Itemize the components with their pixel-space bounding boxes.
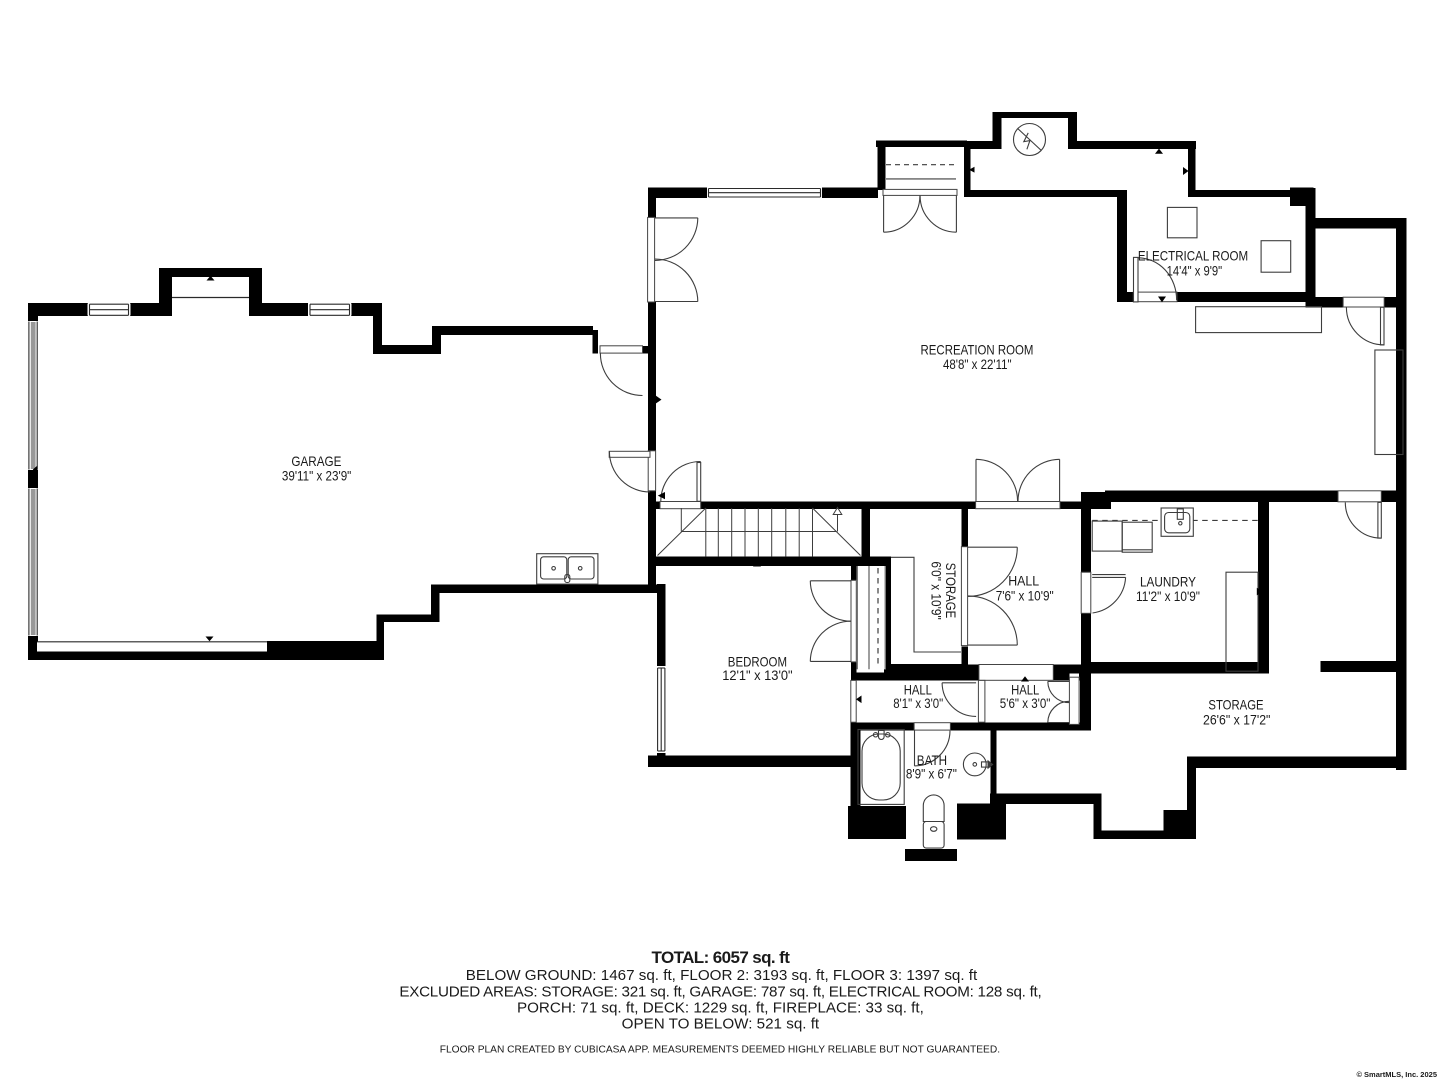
svg-text:8'9" x 6'7": 8'9" x 6'7" bbox=[906, 765, 957, 781]
svg-text:6'0" x 10'9": 6'0" x 10'9" bbox=[929, 561, 945, 619]
svg-text:BELOW GROUND: 1467 sq. ft, FLO: BELOW GROUND: 1467 sq. ft, FLOOR 2: 3193… bbox=[466, 967, 978, 984]
svg-text:TOTAL: 6057 sq. ft: TOTAL: 6057 sq. ft bbox=[651, 948, 790, 967]
svg-text:11'2" x 10'9": 11'2" x 10'9" bbox=[1136, 588, 1200, 604]
svg-text:HALL: HALL bbox=[1008, 573, 1039, 589]
svg-text:8'1" x 3'0": 8'1" x 3'0" bbox=[893, 695, 943, 711]
svg-text:48'8" x 22'11": 48'8" x 22'11" bbox=[943, 356, 1012, 372]
svg-text:39'11" x 23'9": 39'11" x 23'9" bbox=[282, 467, 351, 483]
svg-text:26'6" x 17'2": 26'6" x 17'2" bbox=[1203, 711, 1270, 727]
svg-text:OPEN TO BELOW: 521 sq. ft: OPEN TO BELOW: 521 sq. ft bbox=[622, 1015, 820, 1032]
svg-text:PORCH: 71 sq. ft, DECK: 1229 s: PORCH: 71 sq. ft, DECK: 1229 sq. ft, FIR… bbox=[517, 1000, 924, 1017]
svg-text:12'1" x 13'0": 12'1" x 13'0" bbox=[722, 667, 792, 683]
svg-text:7'6" x 10'9": 7'6" x 10'9" bbox=[996, 588, 1054, 604]
svg-text:ELECTRICAL ROOM: ELECTRICAL ROOM bbox=[1138, 248, 1248, 264]
svg-text:5'6" x 3'0": 5'6" x 3'0" bbox=[1000, 695, 1051, 711]
svg-text:STORAGE: STORAGE bbox=[1208, 696, 1263, 712]
svg-text:EXCLUDED AREAS: STORAGE: 321 s: EXCLUDED AREAS: STORAGE: 321 sq. ft, GAR… bbox=[399, 983, 1041, 1000]
svg-text:FLOOR PLAN CREATED BY CUBICASA: FLOOR PLAN CREATED BY CUBICASA APP. MEAS… bbox=[440, 1044, 1000, 1055]
svg-text:14'4" x 9'9": 14'4" x 9'9" bbox=[1167, 262, 1223, 278]
svg-text:© SmartMLS, Inc. 2025: © SmartMLS, Inc. 2025 bbox=[1356, 1070, 1437, 1079]
